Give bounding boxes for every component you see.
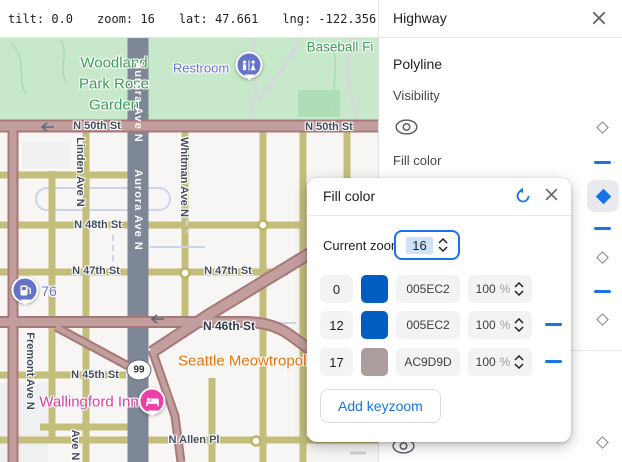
poi-label-restroom: Restroom xyxy=(173,61,229,76)
keyframe-diamond-filled-icon xyxy=(595,188,611,204)
street-label-ave-n: Ave N xyxy=(69,430,81,461)
park-label-baseball: Baseball Fi xyxy=(307,40,374,55)
keyzoom-level[interactable]: 17 xyxy=(320,348,353,376)
street-label-n48th: N 48th St xyxy=(74,219,122,231)
color-swatch[interactable] xyxy=(361,348,388,376)
chevron-up-icon[interactable] xyxy=(514,318,524,324)
poi-label-wallingford-inn: Wallingford Inn xyxy=(39,394,139,411)
chevron-down-icon[interactable] xyxy=(438,246,448,252)
panel-close-button[interactable] xyxy=(591,10,609,28)
gas-pump-icon xyxy=(19,284,31,296)
color-swatch[interactable] xyxy=(361,275,388,303)
opacity-value[interactable]: 100 xyxy=(476,282,496,296)
poi-label-76: 76 xyxy=(41,283,57,299)
dialog-divider xyxy=(307,215,571,216)
section-polyline: Polyline xyxy=(393,56,442,72)
poi-label-cat-cafe: Seattle Meowtropoli xyxy=(178,353,310,370)
chevron-down-icon[interactable] xyxy=(514,326,524,332)
color-swatch[interactable] xyxy=(361,311,388,339)
add-keyzoom-button[interactable]: Add keyzoom xyxy=(320,389,441,423)
percent-sign: % xyxy=(500,282,511,296)
park-label-woodland: Woodland Park Rose Garden xyxy=(63,53,165,116)
keyzoom-row: 17 AC9D9D 100% xyxy=(307,348,571,376)
restroom-pin[interactable] xyxy=(236,52,263,79)
keyzoom-row: 0 005EC2 100% xyxy=(307,275,571,303)
current-zoom-label: Current zoom xyxy=(323,238,402,253)
key-dash-icon-2[interactable] xyxy=(594,227,611,230)
keyzoom-row: 12 005EC2 100% xyxy=(307,311,571,339)
hex-value-field[interactable]: AC9D9D xyxy=(396,348,460,376)
opacity-value[interactable]: 100 xyxy=(476,355,496,369)
keyzoom-level[interactable]: 12 xyxy=(320,311,353,339)
street-label-n47th-2: N 47th St xyxy=(204,265,252,277)
panel-header-divider xyxy=(379,37,622,38)
chevron-down-icon[interactable] xyxy=(514,363,524,369)
opacity-chevrons[interactable] xyxy=(514,282,524,296)
hex-value-field[interactable]: 005EC2 xyxy=(396,275,460,303)
gas-station-pin[interactable] xyxy=(12,277,39,304)
opacity-value[interactable]: 100 xyxy=(476,318,496,332)
panel-title: Highway xyxy=(393,10,447,26)
remove-keyzoom-dash-icon[interactable] xyxy=(545,360,562,363)
keyframe-selected[interactable] xyxy=(587,180,619,212)
opacity-chevrons[interactable] xyxy=(514,318,524,332)
map-status-bar: tilt: 0.0 zoom: 16 lat: 47.661 lng: -122… xyxy=(0,0,378,38)
opacity-stepper[interactable]: 100% xyxy=(468,311,532,339)
dialog-close-button[interactable] xyxy=(544,187,562,205)
hotel-pin[interactable] xyxy=(139,388,166,415)
maps-style-editor: tilt: 0.0 zoom: 16 lat: 47.661 lng: -122… xyxy=(0,0,622,462)
opacity-stepper[interactable]: 100% xyxy=(468,348,532,376)
close-icon xyxy=(544,187,559,202)
next-section-keyframe-diamond-icon[interactable] xyxy=(596,436,609,449)
zoom-stepper-chevrons[interactable] xyxy=(438,238,448,252)
lat-readout: lat: 47.661 xyxy=(179,12,258,26)
opacity-chevrons[interactable] xyxy=(514,355,524,369)
reset-button[interactable] xyxy=(514,187,532,205)
street-label-aurora: Aurora Ave N xyxy=(132,61,144,142)
chevron-up-icon[interactable] xyxy=(514,355,524,361)
percent-sign: % xyxy=(500,318,511,332)
current-zoom-value[interactable]: 16 xyxy=(406,237,432,254)
street-label-fremont: Fremont Ave N xyxy=(24,332,36,409)
bed-icon xyxy=(145,396,159,407)
street-label-n46th: N 46th St xyxy=(203,319,255,333)
chevron-up-icon[interactable] xyxy=(438,238,448,244)
restroom-icon xyxy=(242,60,257,70)
current-zoom-stepper[interactable]: 16 xyxy=(394,230,460,260)
street-label-n50th-2: N 50th St xyxy=(305,121,353,133)
street-label-n-allen-pl: N Allen Pl xyxy=(169,434,220,446)
keyframe-diamond-icon-3[interactable] xyxy=(596,313,609,326)
visibility-label: Visibility xyxy=(393,88,440,103)
remove-keyzoom-dash-icon[interactable] xyxy=(545,323,562,326)
street-label-n47th: N 47th St xyxy=(72,265,120,277)
opacity-stepper[interactable]: 100% xyxy=(468,275,532,303)
visibility-keyframe-diamond-icon[interactable] xyxy=(596,121,609,134)
percent-sign: % xyxy=(500,355,511,369)
street-label-linden: Linden Ave N xyxy=(74,137,86,206)
highway-99-shield: 99 xyxy=(127,360,152,381)
street-label-n45th: N 45th St xyxy=(71,369,119,381)
highway-99-number: 99 xyxy=(133,365,144,376)
street-label-n50th: N 50th St xyxy=(73,120,121,132)
hex-value-field[interactable]: 005EC2 xyxy=(396,311,460,339)
keyframe-diamond-icon-2[interactable] xyxy=(596,251,609,264)
reset-icon xyxy=(514,187,532,205)
street-label-whitman: Whitman Ave N xyxy=(178,137,190,217)
tilt-readout: tilt: 0.0 xyxy=(8,12,73,26)
keyzoom-level[interactable]: 0 xyxy=(320,275,353,303)
zoom-readout: zoom: 16 xyxy=(97,12,155,26)
key-dash-icon-3[interactable] xyxy=(594,290,611,293)
fill-color-label: Fill color xyxy=(393,153,441,168)
visibility-eye-button[interactable] xyxy=(395,119,418,140)
fill-color-dialog: Fill color Current zoom 16 0 005EC2 xyxy=(307,178,571,442)
dialog-title: Fill color xyxy=(323,188,375,204)
lng-readout: lng: -122.356 xyxy=(282,12,376,26)
chevron-up-icon[interactable] xyxy=(514,282,524,288)
fill-color-key-dash-icon[interactable] xyxy=(594,161,611,164)
street-label-aurora-2: Aurora Ave N xyxy=(132,169,144,250)
chevron-down-icon[interactable] xyxy=(514,290,524,296)
eye-icon xyxy=(395,119,418,135)
close-icon xyxy=(591,10,607,26)
